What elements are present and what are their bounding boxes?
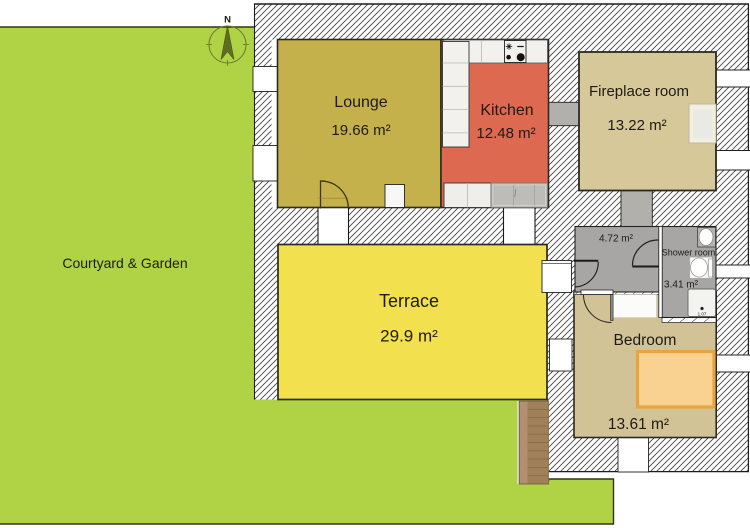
svg-text:13.22 m²: 13.22 m² [607,117,666,134]
svg-text:4.72 m²: 4.72 m² [599,234,634,245]
svg-text:29.9 m²: 29.9 m² [380,327,438,346]
svg-text:N: N [224,15,231,26]
svg-text:13.61 m²: 13.61 m² [608,416,669,433]
svg-text:1.07: 1.07 [698,312,707,317]
svg-text:3.41 m²: 3.41 m² [664,280,699,291]
svg-text:Bedroom: Bedroom [614,332,677,349]
svg-text:Kitchen: Kitchen [480,102,533,119]
svg-text:Shower room: Shower room [662,248,716,258]
svg-text:Terrace: Terrace [379,291,439,311]
svg-text:12.48 m²: 12.48 m² [476,125,535,142]
svg-text:Courtyard & Garden: Courtyard & Garden [62,255,187,271]
svg-text:Lounge: Lounge [334,94,387,111]
svg-text:Fireplace room: Fireplace room [589,83,689,100]
svg-text:19.66 m²: 19.66 m² [331,122,390,139]
